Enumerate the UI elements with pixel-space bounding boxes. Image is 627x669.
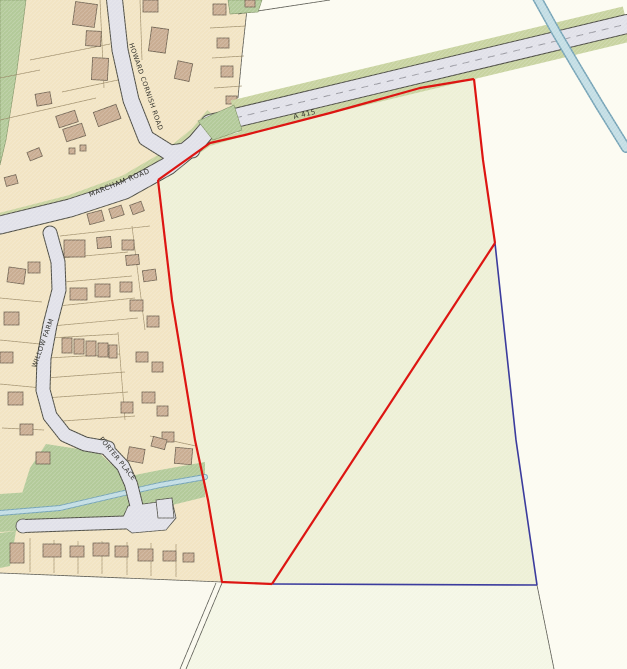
halftone-texture	[0, 0, 627, 669]
site-location-map: MARCHAM ROAD A 415 HOWARD CORNISH ROAD W…	[0, 0, 627, 669]
map-viewport: MARCHAM ROAD A 415 HOWARD CORNISH ROAD W…	[0, 0, 627, 669]
extent-boundary-blue-south	[272, 584, 537, 585]
